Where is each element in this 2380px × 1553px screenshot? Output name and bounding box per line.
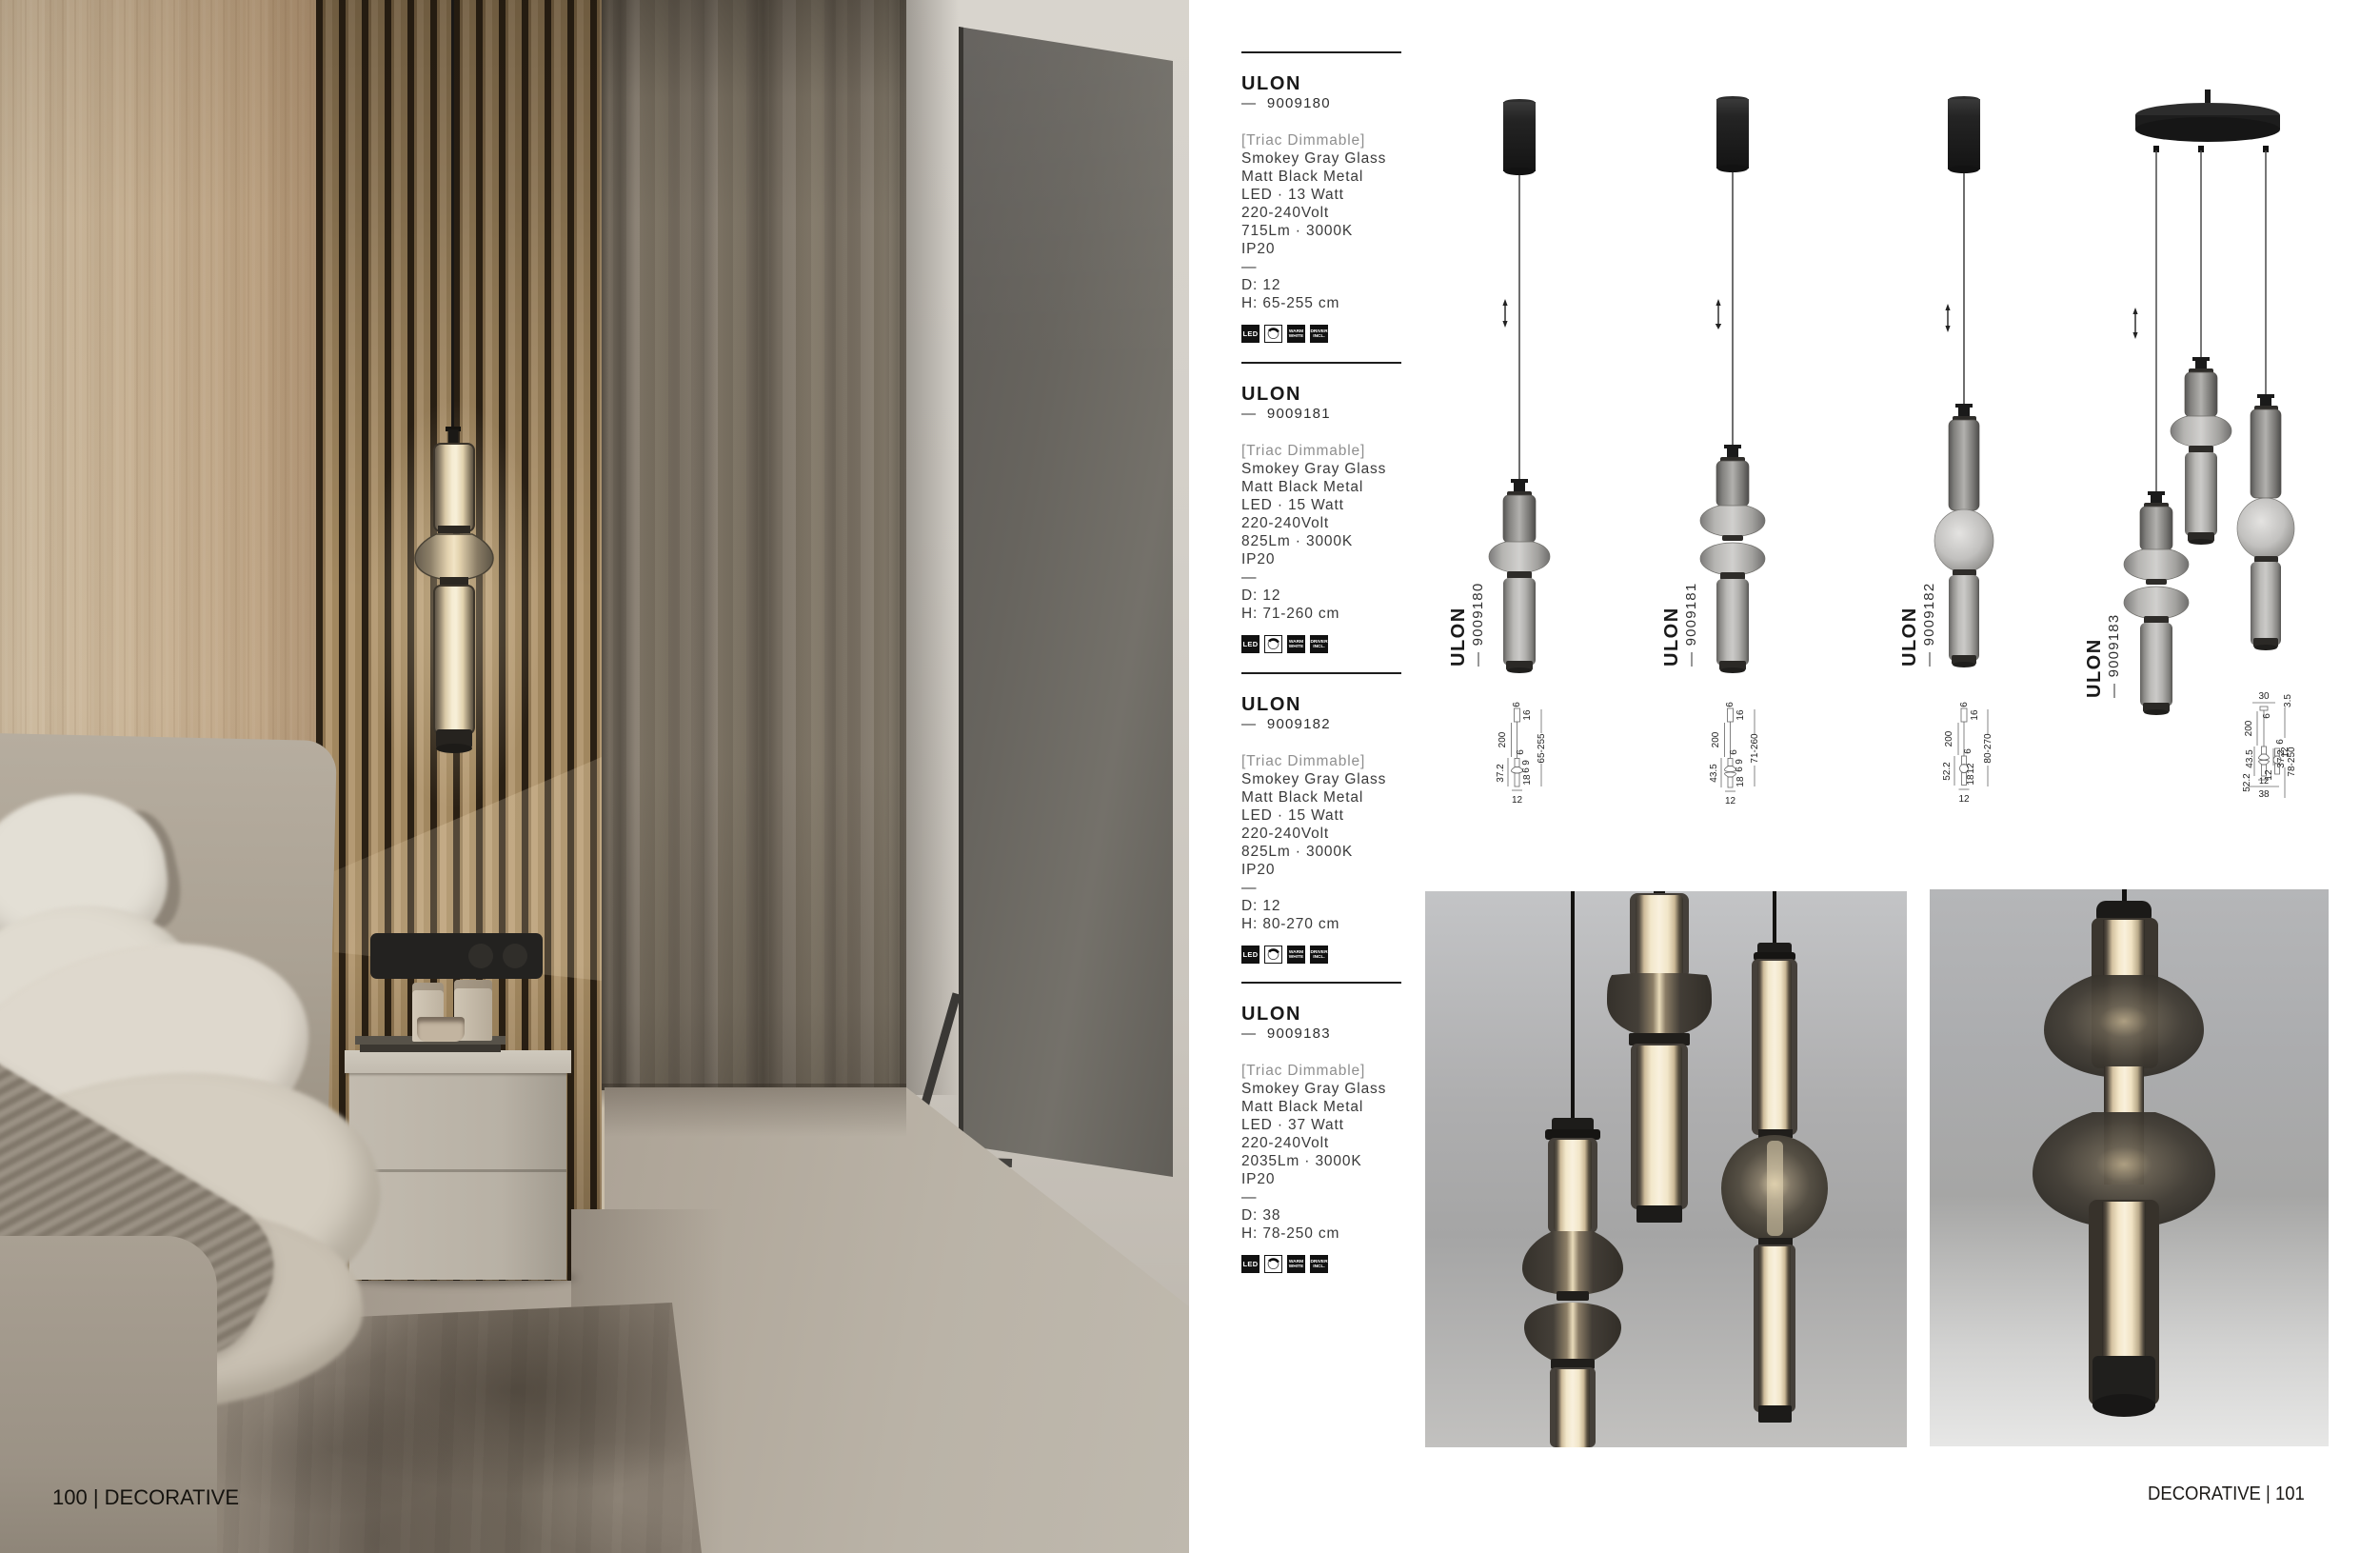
svg-text:6: 6	[1516, 749, 1526, 755]
svg-text:12: 12	[1725, 796, 1736, 806]
svg-text:6: 6	[1735, 767, 1745, 772]
svg-text:18: 18	[1966, 774, 1976, 786]
svg-text:6: 6	[1521, 767, 1532, 773]
svg-text:16: 16	[1970, 709, 1980, 721]
svg-text:78-250: 78-250	[2287, 747, 2297, 777]
svg-text:12: 12	[1512, 795, 1523, 806]
svg-text:52.2: 52.2	[1942, 762, 1953, 781]
svg-text:18: 18	[1735, 776, 1746, 787]
svg-text:30: 30	[2258, 691, 2270, 702]
svg-text:6: 6	[2275, 739, 2286, 745]
svg-text:9: 9	[1735, 759, 1745, 765]
svg-text:200: 200	[1944, 730, 1954, 747]
svg-text:38: 38	[2258, 789, 2270, 800]
svg-text:18: 18	[1522, 774, 1533, 786]
svg-text:6: 6	[1963, 748, 1973, 754]
svg-text:6: 6	[1725, 702, 1735, 707]
svg-text:12: 12	[1958, 794, 1970, 805]
svg-text:6: 6	[1959, 702, 1970, 707]
svg-text:37.2: 37.2	[1496, 764, 1506, 783]
svg-text:43.5: 43.5	[1709, 764, 1719, 783]
svg-text:71-260: 71-260	[1750, 733, 1760, 764]
svg-text:65-255: 65-255	[1537, 733, 1547, 764]
svg-text:6: 6	[1512, 702, 1522, 707]
svg-text:43.5: 43.5	[2245, 749, 2255, 768]
svg-text:6: 6	[2262, 713, 2272, 719]
svg-text:12: 12	[1966, 763, 1976, 774]
svg-text:52.2: 52.2	[2242, 773, 2252, 792]
svg-text:12: 12	[2259, 776, 2269, 786]
svg-text:9: 9	[1521, 760, 1532, 766]
svg-text:200: 200	[2244, 720, 2254, 736]
svg-text:200: 200	[1497, 731, 1508, 747]
svg-text:6: 6	[1729, 749, 1739, 755]
svg-text:3.5: 3.5	[2283, 694, 2293, 707]
svg-text:200: 200	[1711, 731, 1721, 747]
svg-text:16: 16	[1735, 709, 1746, 721]
svg-text:16: 16	[1522, 709, 1533, 721]
svg-text:80-270: 80-270	[1983, 733, 1993, 764]
